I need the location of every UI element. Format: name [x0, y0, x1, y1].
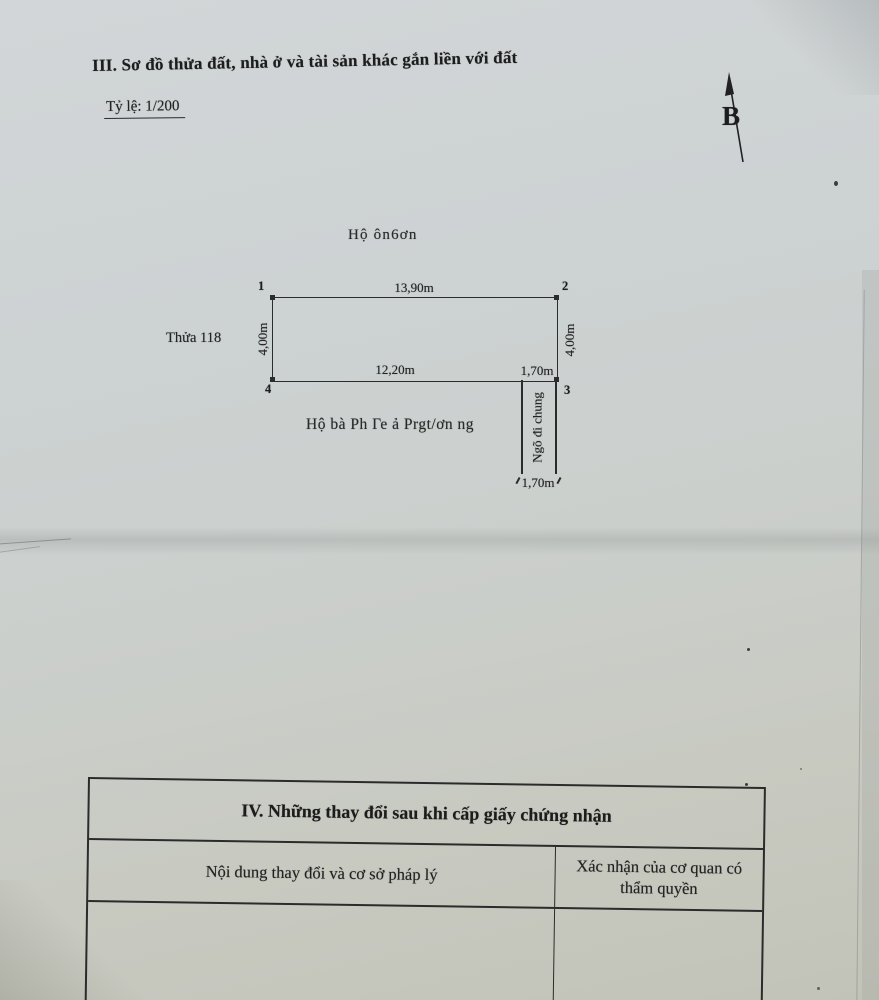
dimension-left: 4,00m	[255, 315, 271, 363]
section4-title: IV. Những thay đổi sau khi cấp giấy chứn…	[89, 779, 764, 850]
empty-cell-content	[86, 902, 555, 1000]
ink-speck	[834, 181, 838, 186]
scale-label: Tỷ lệ: 1/200	[104, 98, 186, 119]
paper-edge-shadow	[862, 270, 879, 1000]
dimension-right: 4,00m	[562, 316, 578, 364]
section3-title: III. Sơ đồ thửa đất, nhà ở và tài sản kh…	[92, 47, 582, 76]
ink-speck	[747, 648, 750, 651]
column-header-content: Nội dung thay đổi và cơ sở pháp lý	[88, 840, 556, 907]
dimension-bottom-right: 1,70m	[512, 363, 562, 379]
north-letter: B	[722, 103, 740, 130]
ink-speck	[817, 987, 820, 990]
neighbor-top-label: Hộ ôn6ơn	[348, 227, 418, 244]
dimension-top: 13,90m	[272, 280, 556, 296]
table-empty-row	[86, 902, 762, 1000]
neighbor-bottom-label: Hộ bà Ph Ге ả Prgt/ơn ng	[306, 416, 474, 434]
ink-speck	[800, 768, 802, 770]
section4-table: IV. Những thay đổi sau khi cấp giấy chứn…	[84, 777, 766, 1000]
alley-width-label: 1,70m	[514, 475, 562, 491]
table-header-row: Nội dung thay đổi và cơ sở pháp lý Xác n…	[88, 840, 763, 912]
corner-point	[270, 377, 275, 382]
column-header-confirmation: Xác nhận của cơ quan có thẩm quyền	[555, 847, 763, 910]
corner-label-4: 4	[265, 382, 271, 397]
alley-label: Ngõ đi chung	[530, 392, 545, 464]
scanned-document-page: III. Sơ đồ thửa đất, nhà ở và tài sản kh…	[0, 0, 879, 1000]
fold-shadow-band	[0, 527, 879, 555]
corner-label-1: 1	[258, 279, 264, 294]
parcel-number-label: Thửa 118	[166, 330, 221, 347]
empty-cell-confirmation	[553, 909, 762, 1000]
dimension-bottom-main: 12,20m	[345, 362, 445, 378]
corner-shading	[749, 0, 879, 95]
corner-label-2: 2	[562, 279, 568, 294]
alley-left-line	[521, 380, 523, 474]
ink-speck	[745, 783, 748, 786]
corner-label-3: 3	[564, 383, 570, 398]
alley-right-line	[555, 380, 557, 474]
